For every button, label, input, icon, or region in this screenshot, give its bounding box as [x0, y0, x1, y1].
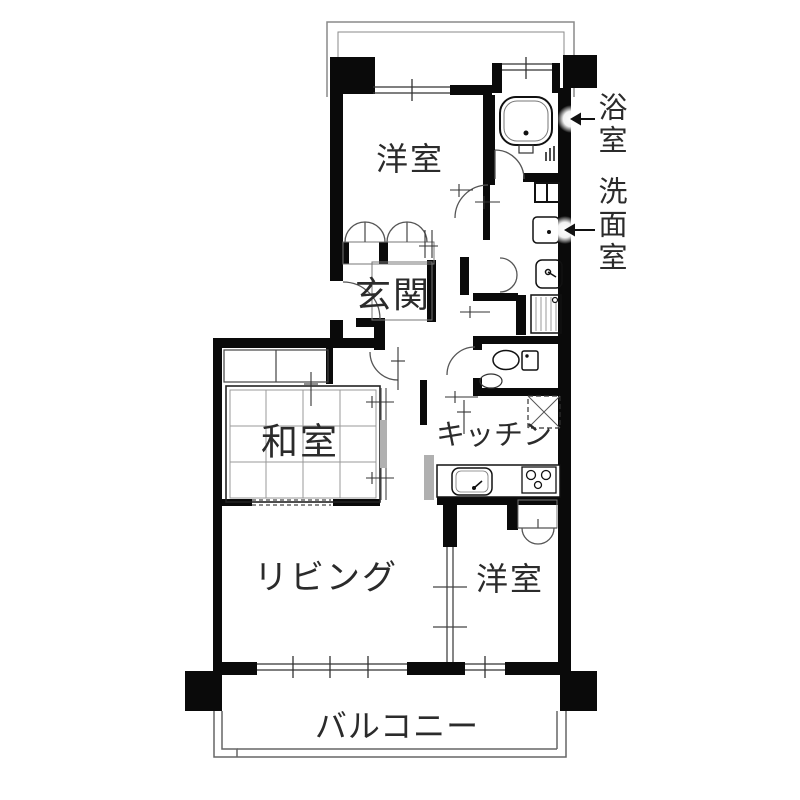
toilet-icon: [493, 351, 538, 371]
floor-plan: [0, 0, 800, 800]
closet-doors-bottom-bedroom: [518, 500, 557, 544]
kitchen-door-track: [424, 455, 434, 500]
pillar-bottom-right: [560, 671, 597, 711]
room-label-washitsu: 和室: [261, 424, 339, 461]
window-living-south: [257, 656, 407, 678]
kitchen-counter: [437, 465, 560, 497]
washing-machine-icon: [531, 295, 561, 333]
toilet-door-arc: [447, 347, 475, 375]
bath-tap-icon: [546, 146, 554, 161]
bathroom-door-arc: [495, 150, 524, 179]
window-bathroom: [502, 57, 552, 79]
pillar-bottom-left: [185, 671, 222, 711]
callout-label-washroom: 洗面室: [596, 176, 625, 275]
room-label-balcony: バルコニー: [315, 710, 479, 742]
window-top: [373, 79, 450, 101]
floor-plan-canvas: 洋室 玄関 和室 キッチン リビング 洋室 バルコニー 浴室 洗面室: [0, 0, 800, 800]
window-bedroom-south: [465, 656, 505, 678]
room-label-bedroom-top: 洋室: [376, 143, 444, 175]
room-label-living: リビング: [254, 561, 398, 595]
washroom-folding-door: [500, 258, 517, 292]
fusuma-track: [380, 420, 387, 468]
room-label-genkan: 玄関: [355, 278, 431, 314]
pillar-top-left: [330, 57, 375, 94]
linen-shelf: [535, 183, 559, 202]
hallway-door-arc: [370, 352, 398, 380]
hand-basin-icon: [480, 374, 502, 388]
bathtub-icon: [500, 97, 552, 153]
closet-doors-top-bedroom: [343, 222, 434, 264]
entrance-opening: [330, 281, 343, 320]
pillar-top-right: [563, 55, 597, 88]
sliding-partition: [433, 547, 467, 662]
callout-label-bathroom: 浴室: [596, 92, 625, 158]
room-label-kitchen: キッチン: [436, 421, 552, 450]
room-label-bedroom-bottom: 洋室: [476, 563, 544, 595]
